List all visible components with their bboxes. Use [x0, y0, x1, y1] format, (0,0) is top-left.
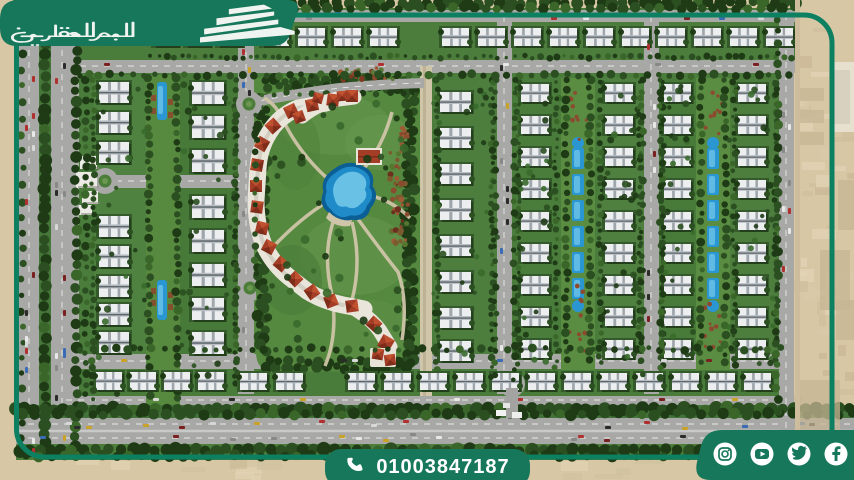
svg-text:01003847187: 01003847187 — [376, 456, 509, 478]
